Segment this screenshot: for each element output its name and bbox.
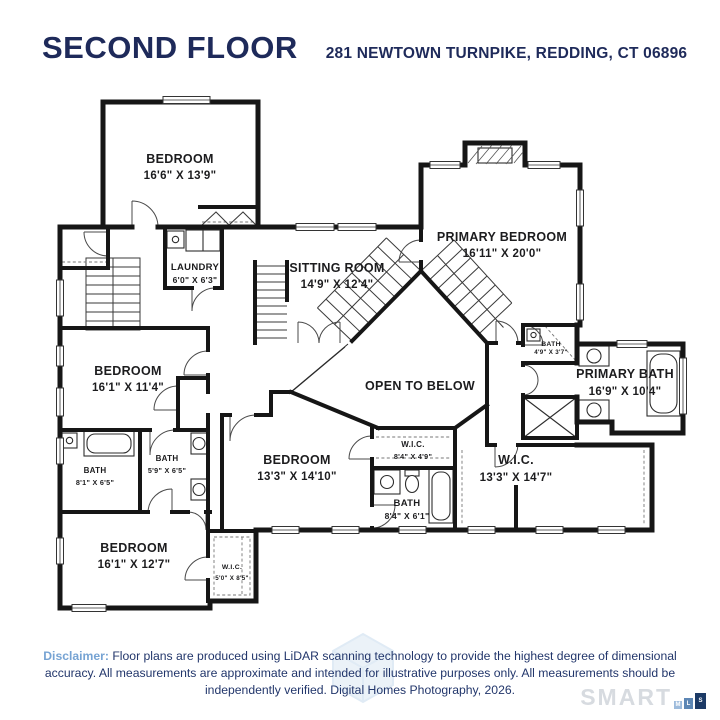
room-label-wic-small: W.I.C.: [401, 440, 425, 449]
room-dims-bath-mid: 5'9" X 6'5": [148, 466, 186, 475]
room-dims-bath-left: 8'1" X 6'5": [76, 478, 114, 487]
room-dims-bedroom-bl: 16'1" X 12'7": [98, 559, 171, 571]
door-bedroom-tl: [132, 201, 158, 227]
room-label-sitting: SITTING ROOM: [289, 261, 384, 275]
floorplan-canvas: BEDROOM 16'6" X 13'9" LAUNDRY 6'0" X 6'3…: [0, 0, 720, 720]
room-label-bedroom-mid: BEDROOM: [263, 453, 330, 467]
door-bedroom-bl: [188, 512, 206, 530]
door-hall-closet: [84, 232, 108, 256]
smartmls-block-m: M: [674, 701, 682, 709]
room-label-primary-bedroom: PRIMARY BEDROOM: [437, 230, 567, 244]
floorplan-page: SECOND FLOOR 281 NEWTOWN TURNPIKE, REDDI…: [0, 0, 720, 720]
room-dims-bedroom-tl: 16'6" X 13'9": [144, 170, 217, 182]
room-label-primary-bath: PRIMARY BATH: [576, 367, 674, 381]
room-label-bedroom-tl: BEDROOM: [146, 152, 213, 166]
door-wic-bottom: [185, 557, 208, 580]
room-label-bath-small: BATH: [541, 341, 561, 348]
room-dims-wic-small: 8'4" X 4'9": [394, 452, 432, 461]
disclaimer-line3: independently verified. Digital Homes Ph…: [205, 683, 515, 697]
room-label-bedroom-left: BEDROOM: [94, 364, 161, 378]
doors-sitting-double: [298, 322, 340, 343]
room-label-bedroom-bl: BEDROOM: [100, 541, 167, 555]
bath-bottom-toilet: [406, 476, 419, 493]
door-bedroom-left: [184, 351, 208, 375]
room-dims-wic-bottom: 5'0" X 8'5": [215, 575, 248, 582]
door-bath-mid-top: [150, 430, 175, 455]
disclaimer-label: Disclaimer:: [43, 649, 109, 663]
stairs-secondary: [255, 266, 287, 338]
doors-primary-bath-double: [523, 365, 538, 395]
smartmls-block-l: L: [684, 698, 693, 709]
room-dims-bath-bottom: 8'4" X 6'1": [385, 511, 430, 521]
door-wic-small: [349, 436, 372, 459]
room-dims-bedroom-mid: 13'3" X 14'10": [257, 471, 336, 483]
smartmls-block-s: S: [695, 693, 706, 709]
door-sitting-primary: [399, 240, 421, 262]
bifold-closet-door: [202, 212, 256, 225]
room-dims-sitting: 14'9" X 12'4": [301, 279, 374, 291]
room-labels: BEDROOM 16'6" X 13'9" LAUNDRY 6'0" X 6'3…: [76, 152, 674, 582]
room-label-laundry: LAUNDRY: [171, 262, 220, 273]
closet-dashes: [62, 222, 644, 595]
room-dims-wic-large: 13'3" X 14'7": [480, 472, 553, 484]
door-bedroom-mid: [230, 415, 256, 441]
shower-glass: [523, 397, 577, 438]
room-label-wic-large: W.I.C.: [498, 453, 534, 467]
disclaimer-line2: accuracy. All measurements are approxima…: [45, 666, 675, 680]
room-dims-bedroom-left: 16'1" X 11'4": [92, 382, 164, 394]
room-label-bath-left: BATH: [84, 466, 107, 475]
disclaimer-line1: Floor plans are produced using LiDAR sca…: [112, 649, 676, 663]
room-label-bath-mid: BATH: [156, 454, 179, 463]
room-label-bath-bottom: BATH: [394, 498, 421, 509]
room-dims-primary-bedroom: 16'11" X 20'0": [463, 248, 542, 260]
room-dims-bath-small: 4'9" X 3'7": [534, 349, 567, 356]
smartmls-watermark: SMART M L S: [580, 686, 706, 709]
room-dims-laundry: 6'0" X 6'3": [173, 275, 218, 285]
room-label-open-to-below: OPEN TO BELOW: [365, 379, 475, 393]
room-dims-primary-bath: 16'9" X 10'4": [589, 386, 662, 398]
smartmls-brand-text: SMART: [580, 686, 672, 709]
door-primary-bedroom: [496, 321, 518, 343]
door-bath-bottomside: [148, 489, 172, 512]
room-label-wic-bottom: W.I.C.: [222, 564, 242, 571]
door-laundry: [192, 288, 215, 311]
